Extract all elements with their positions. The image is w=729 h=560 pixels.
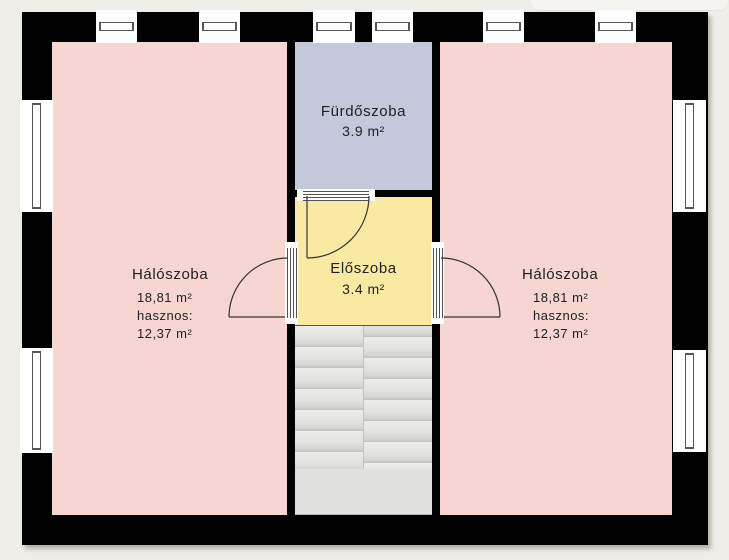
room-area: 3.4 m² xyxy=(295,281,432,297)
bathroom-label: Fürdőszoba 3.9 m² xyxy=(295,103,432,139)
window-left-2 xyxy=(20,348,53,453)
room-usable-area: 12,37 m² xyxy=(137,325,272,343)
stair-center-seam xyxy=(363,326,364,469)
room-name: Előszoba xyxy=(295,260,432,277)
window-pane-icon xyxy=(685,353,694,449)
stair-steps-right xyxy=(364,326,432,469)
room-usable-label: hasznos: xyxy=(137,307,272,325)
window-right-2 xyxy=(673,350,706,452)
staircase xyxy=(295,325,432,515)
door-frame-bedroom-right xyxy=(431,248,444,318)
window-top-4 xyxy=(372,10,413,43)
room-name: Hálószoba xyxy=(132,266,272,283)
window-pane-icon xyxy=(32,103,41,209)
window-pane-icon xyxy=(202,22,237,31)
window-pane-icon xyxy=(486,22,521,31)
window-pane-icon xyxy=(99,22,134,31)
room-name: Fürdőszoba xyxy=(295,103,432,120)
hall-label: Előszoba 3.4 m² xyxy=(295,260,432,297)
room-usable-label: hasznos: xyxy=(533,307,662,325)
window-top-3 xyxy=(313,10,355,43)
bedroom-right-label: Hálószoba 18,81 m² hasznos: 12,37 m² xyxy=(522,266,662,343)
room-area: 18,81 m² xyxy=(137,289,272,307)
window-top-5 xyxy=(483,10,524,43)
window-pane-icon xyxy=(316,22,352,31)
room-usable-area: 12,37 m² xyxy=(533,325,662,343)
window-top-1 xyxy=(96,10,137,43)
window-right-1 xyxy=(673,100,706,212)
window-top-2 xyxy=(199,10,240,43)
window-left-1 xyxy=(20,100,53,212)
window-pane-icon xyxy=(375,22,410,31)
floorplan-canvas: Fürdőszoba 3.9 m² Előszoba 3.4 m² Hálósz… xyxy=(0,0,729,560)
room-area: 18,81 m² xyxy=(533,289,662,307)
window-pane-icon xyxy=(32,351,41,450)
window-pane-icon xyxy=(685,103,694,209)
stair-steps-left xyxy=(295,326,364,469)
room-area: 3.9 m² xyxy=(295,123,432,139)
door-frame-bathroom xyxy=(303,189,369,201)
bedroom-left-label: Hálószoba 18,81 m² hasznos: 12,37 m² xyxy=(132,266,272,343)
top-right-overlay-artifact xyxy=(530,0,728,10)
window-pane-icon xyxy=(598,22,633,31)
room-name: Hálószoba xyxy=(522,266,662,283)
window-top-6 xyxy=(595,10,636,43)
